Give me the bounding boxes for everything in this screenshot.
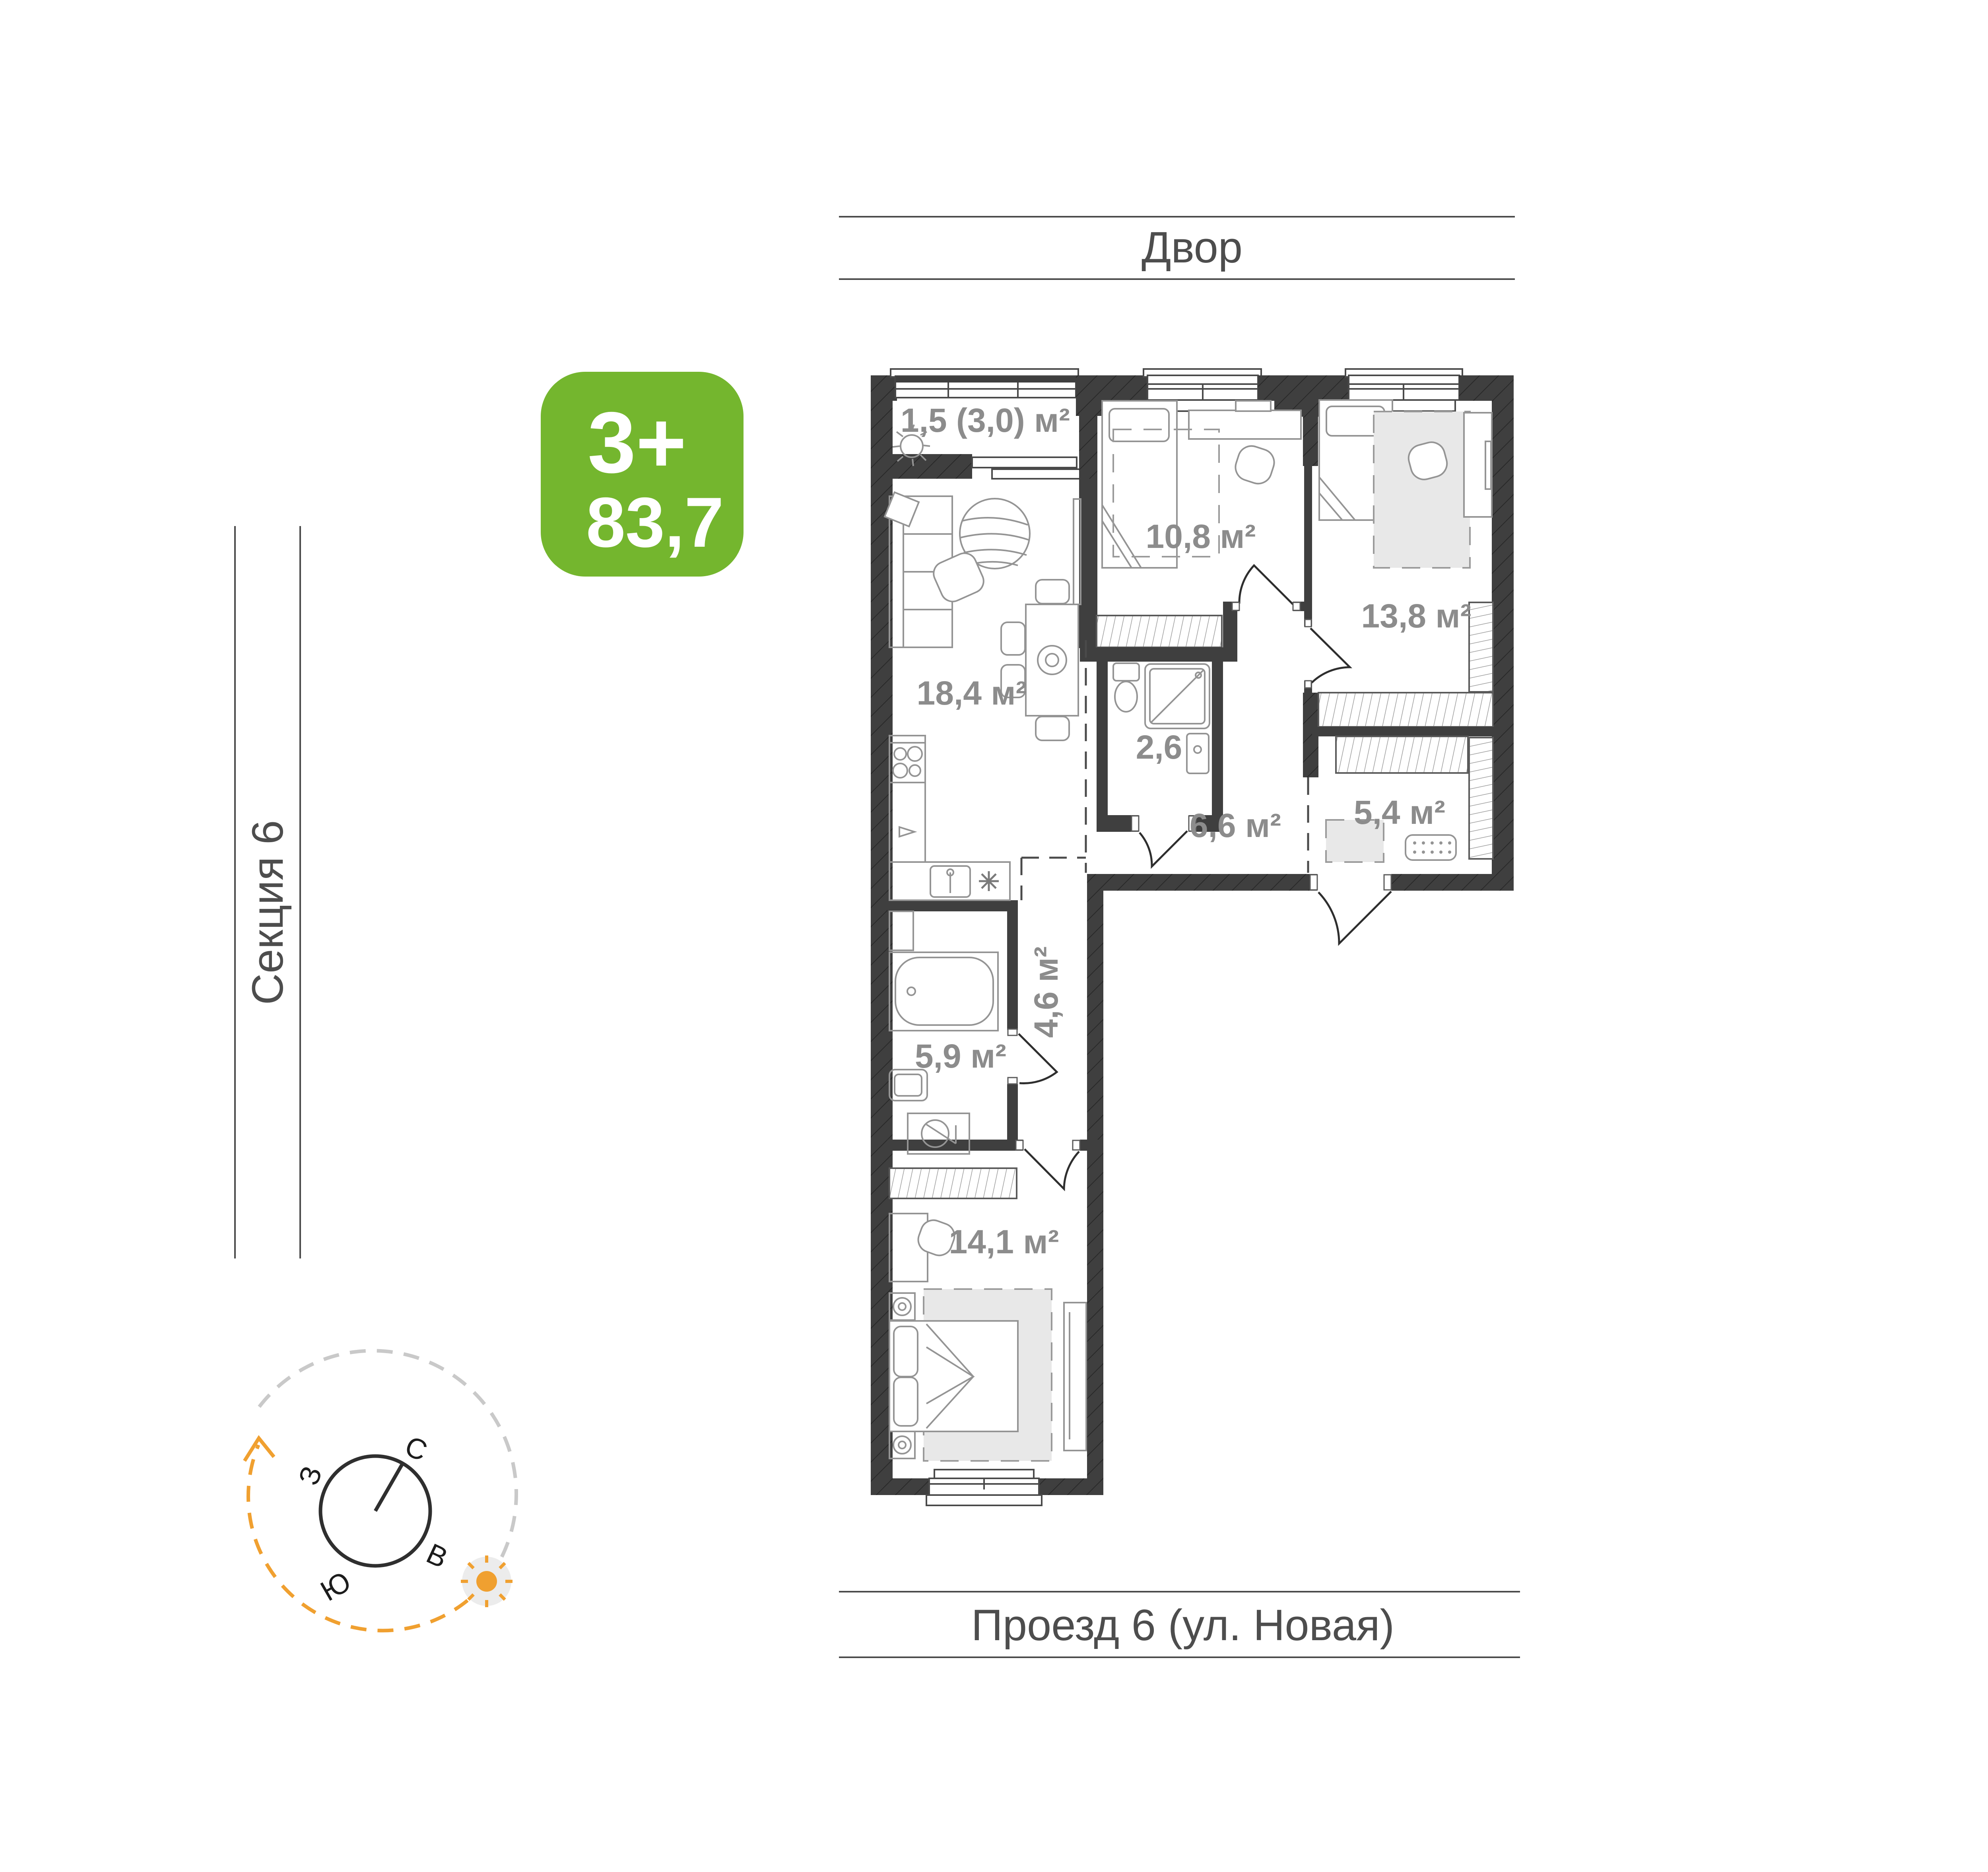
svg-text:18,4 м²: 18,4 м² [917, 674, 1027, 712]
svg-text:14,1 м²: 14,1 м² [949, 1223, 1059, 1260]
svg-text:4,6 м²: 4,6 м² [1027, 946, 1065, 1038]
svg-text:5,4 м²: 5,4 м² [1354, 794, 1445, 831]
svg-text:5,9 м²: 5,9 м² [915, 1037, 1006, 1075]
svg-text:83,7: 83,7 [586, 483, 724, 562]
svg-text:Проезд 6 (ул. Новая): Проезд 6 (ул. Новая) [971, 1601, 1394, 1650]
svg-text:10,8 м²: 10,8 м² [1146, 518, 1256, 555]
svg-text:2,6: 2,6 [1136, 728, 1182, 766]
svg-text:Секция 6: Секция 6 [243, 820, 292, 1005]
svg-text:13,8 м²: 13,8 м² [1361, 597, 1472, 635]
svg-text:6,6 м²: 6,6 м² [1190, 807, 1281, 844]
svg-text:Двор: Двор [1142, 223, 1242, 272]
svg-text:3+: 3+ [588, 394, 687, 491]
svg-text:1,5 (3,0) м²: 1,5 (3,0) м² [901, 402, 1070, 439]
